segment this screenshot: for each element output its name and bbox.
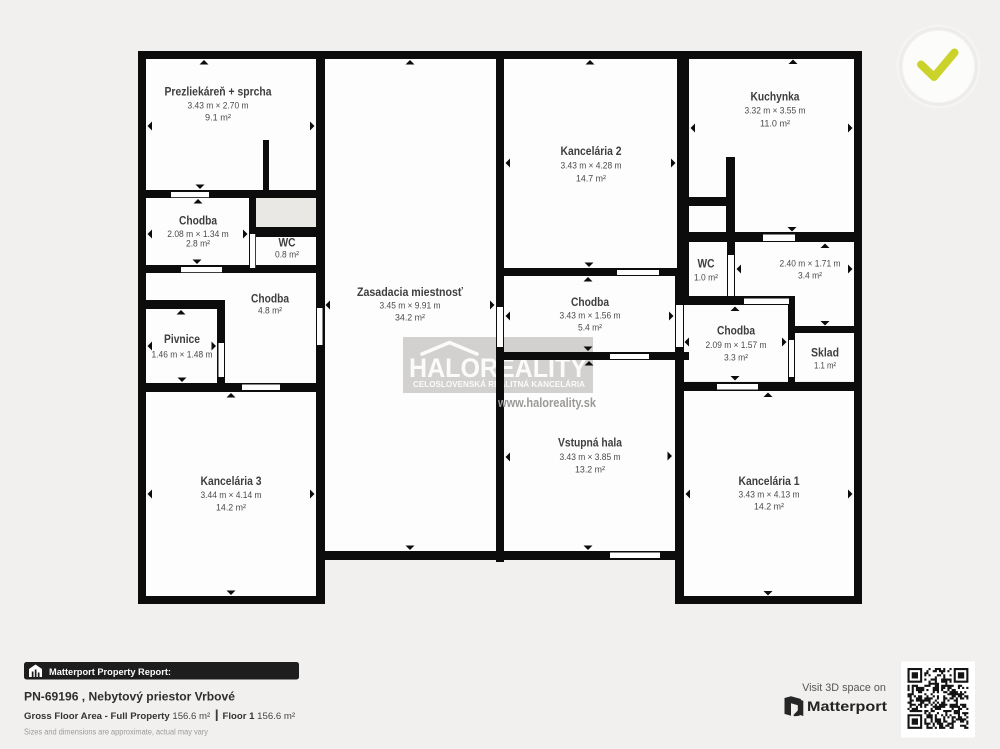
svg-text:2.8 m²: 2.8 m² [186,239,211,250]
svg-text:1.46 m × 1.48 m: 1.46 m × 1.48 m [152,350,213,361]
svg-text:3.43 m × 3.85 m: 3.43 m × 3.85 m [560,452,621,463]
svg-text:11.0 m²: 11.0 m² [760,119,791,130]
svg-text:3.45 m × 9.91 m: 3.45 m × 9.91 m [380,301,441,312]
svg-text:4.8 m²: 4.8 m² [258,306,283,317]
svg-text:Chodba: Chodba [571,295,609,309]
svg-text:WC: WC [279,236,296,250]
svg-text:Kancelária 3: Kancelária 3 [201,474,262,488]
svg-text:5.4 m²: 5.4 m² [578,323,603,334]
svg-text:1.1 m²: 1.1 m² [814,361,837,372]
svg-text:0.8 m²: 0.8 m² [275,250,300,261]
svg-text:3.4 m²: 3.4 m² [798,271,823,282]
svg-text:Zasadacia miestnosť: Zasadacia miestnosť [357,285,463,299]
svg-text:3.3 m²: 3.3 m² [724,353,749,364]
svg-text:3.32 m × 3.55 m: 3.32 m × 3.55 m [745,106,806,117]
svg-text:3.44 m × 4.14 m: 3.44 m × 4.14 m [201,490,262,501]
svg-text:Floor 1 156.6 m²: Floor 1 156.6 m² [223,711,296,722]
svg-text:14.2 m²: 14.2 m² [754,502,785,513]
svg-text:3.43 m × 1.56 m: 3.43 m × 1.56 m [560,311,621,322]
svg-text:3.43 m × 4.13 m: 3.43 m × 4.13 m [739,490,800,501]
svg-text:9.1 m²: 9.1 m² [205,113,232,124]
svg-text:Gross Floor Area - Full Proper: Gross Floor Area - Full Property 156.6 m… [24,711,211,722]
svg-text:14.7 m²: 14.7 m² [576,174,607,185]
svg-text:34.2 m²: 34.2 m² [395,313,426,324]
svg-text:WC: WC [698,257,715,271]
svg-text:Matterport Property Report:: Matterport Property Report: [49,667,171,677]
svg-text:3.43 m × 4.28 m: 3.43 m × 4.28 m [561,161,622,172]
svg-text:1.0 m²: 1.0 m² [694,273,719,284]
svg-text:Prezliekáreň + sprcha: Prezliekáreň + sprcha [165,85,272,99]
svg-text:Vstupná hala: Vstupná hala [558,436,622,450]
svg-text:13.2 m²: 13.2 m² [575,465,606,476]
svg-text:2.09 m × 1.57 m: 2.09 m × 1.57 m [706,340,767,351]
svg-text:Visit 3D space on: Visit 3D space on [802,682,886,694]
svg-text:3.43 m × 2.70 m: 3.43 m × 2.70 m [188,101,249,112]
svg-text:2.40 m × 1.71 m: 2.40 m × 1.71 m [780,259,841,270]
svg-text:Matterport: Matterport [807,698,887,714]
svg-text:14.2 m²: 14.2 m² [216,503,247,514]
svg-text:Kuchynka: Kuchynka [751,90,800,104]
svg-text:PN-69196 , Nebytový priestor V: PN-69196 , Nebytový priestor Vrbové [24,690,235,704]
svg-text:Kancelária 2: Kancelária 2 [561,144,622,158]
svg-text:Chodba: Chodba [717,324,755,338]
svg-text:Sizes and dimensions are appro: Sizes and dimensions are approximate, ac… [24,728,208,737]
svg-text:Sklad: Sklad [811,346,839,360]
svg-text:Chodba: Chodba [179,214,217,228]
svg-text:www.haloreality.sk: www.haloreality.sk [497,396,596,410]
svg-text:Chodba: Chodba [251,292,289,306]
svg-text:Kancelária 1: Kancelária 1 [739,474,800,488]
svg-text:Pivnice: Pivnice [164,332,200,346]
